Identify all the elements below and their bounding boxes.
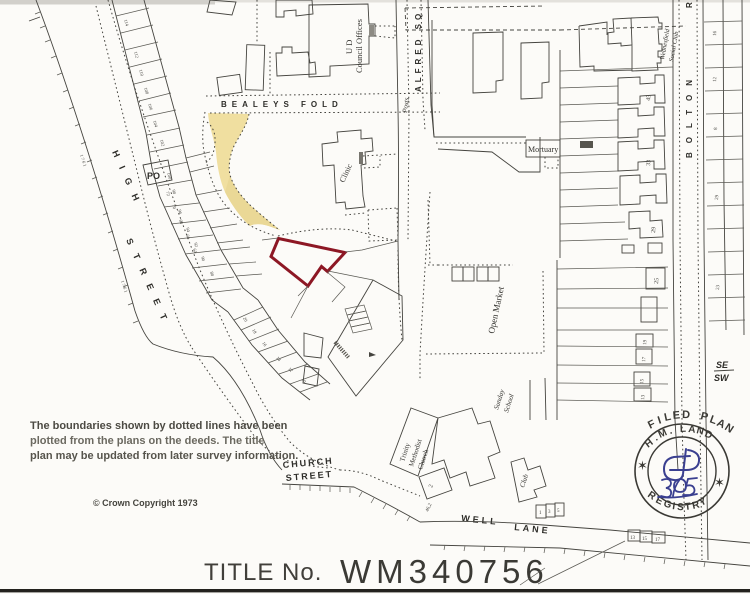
- svg-text:SE: SE: [716, 360, 729, 370]
- svg-text:15: 15: [642, 537, 648, 542]
- svg-text:✶: ✶: [714, 475, 725, 490]
- svg-text:© Crown Copyright 1973: © Crown Copyright 1973: [93, 498, 198, 508]
- svg-text:The boundaries shown by dotted: The boundaries shown by dotted lines hav…: [30, 420, 288, 432]
- svg-text:D: D: [682, 409, 690, 421]
- svg-text:23: 23: [716, 284, 721, 290]
- svg-text:PO: PO: [147, 171, 160, 181]
- svg-text:29: 29: [651, 227, 658, 234]
- svg-text:13: 13: [630, 536, 636, 541]
- svg-text:WM340756: WM340756: [340, 553, 549, 590]
- svg-text:T: T: [684, 501, 691, 513]
- svg-text:plotted from the plans on the: plotted from the plans on the deeds. The…: [30, 435, 265, 447]
- svg-text:19: 19: [643, 339, 648, 345]
- svg-text:TITLE No.: TITLE No.: [204, 559, 322, 586]
- svg-text:R: R: [685, 2, 694, 8]
- svg-text:29: 29: [715, 194, 720, 200]
- svg-text:E: E: [672, 409, 680, 422]
- svg-text:plan may be updated from later: plan may be updated from later survey in…: [30, 450, 298, 462]
- svg-text:13: 13: [641, 394, 646, 400]
- svg-text:12: 12: [713, 76, 718, 82]
- svg-text:SW: SW: [714, 373, 730, 383]
- svg-text:✶: ✶: [637, 458, 648, 473]
- svg-text:U D: U D: [344, 40, 354, 54]
- svg-text:Council Offices: Council Offices: [354, 19, 364, 73]
- svg-text:S: S: [677, 502, 684, 513]
- svg-text:ALFRED SQ: ALFRED SQ: [414, 10, 423, 92]
- svg-text:15: 15: [640, 378, 645, 384]
- svg-text:45: 45: [646, 95, 653, 102]
- svg-text:33: 33: [646, 160, 653, 167]
- svg-text:BOLTON: BOLTON: [685, 71, 694, 158]
- svg-text:17: 17: [655, 538, 661, 543]
- svg-text:BEALEYS FOLD: BEALEYS FOLD: [221, 100, 343, 109]
- svg-text:Mortuary: Mortuary: [528, 145, 558, 154]
- svg-text:L: L: [680, 424, 686, 435]
- svg-text:16: 16: [713, 30, 718, 36]
- svg-text:17: 17: [642, 356, 647, 362]
- svg-text:25: 25: [654, 278, 661, 285]
